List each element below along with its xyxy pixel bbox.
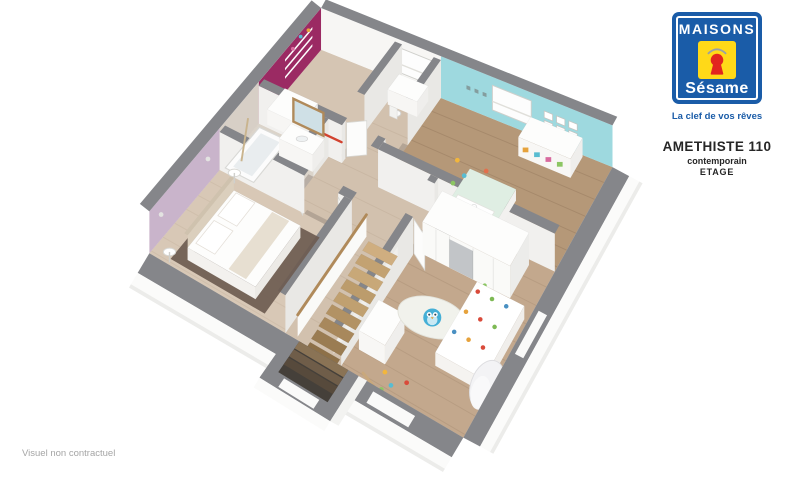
logo-brand-sub: Sésame (672, 80, 762, 98)
floorplan-visual-stage: MAISONS Sésame La clef de vos rêves AMET… (0, 0, 811, 480)
keyhole-icon (698, 41, 736, 79)
model-name: AMETHISTE 110 (633, 139, 801, 154)
disclaimer-caption: Visuel non contractuel (22, 448, 115, 459)
brand-tagline: La clef de vos rêves (633, 111, 801, 122)
model-level: ETAGE (633, 167, 801, 177)
logo-brand-name: MAISONS (672, 12, 762, 37)
floorplan-3d (129, 0, 643, 472)
maisons-sesame-logo: MAISONS Sésame (672, 12, 762, 104)
brand-block: MAISONS Sésame La clef de vos rêves AMET… (633, 12, 801, 177)
model-style: contemporain (633, 156, 801, 166)
